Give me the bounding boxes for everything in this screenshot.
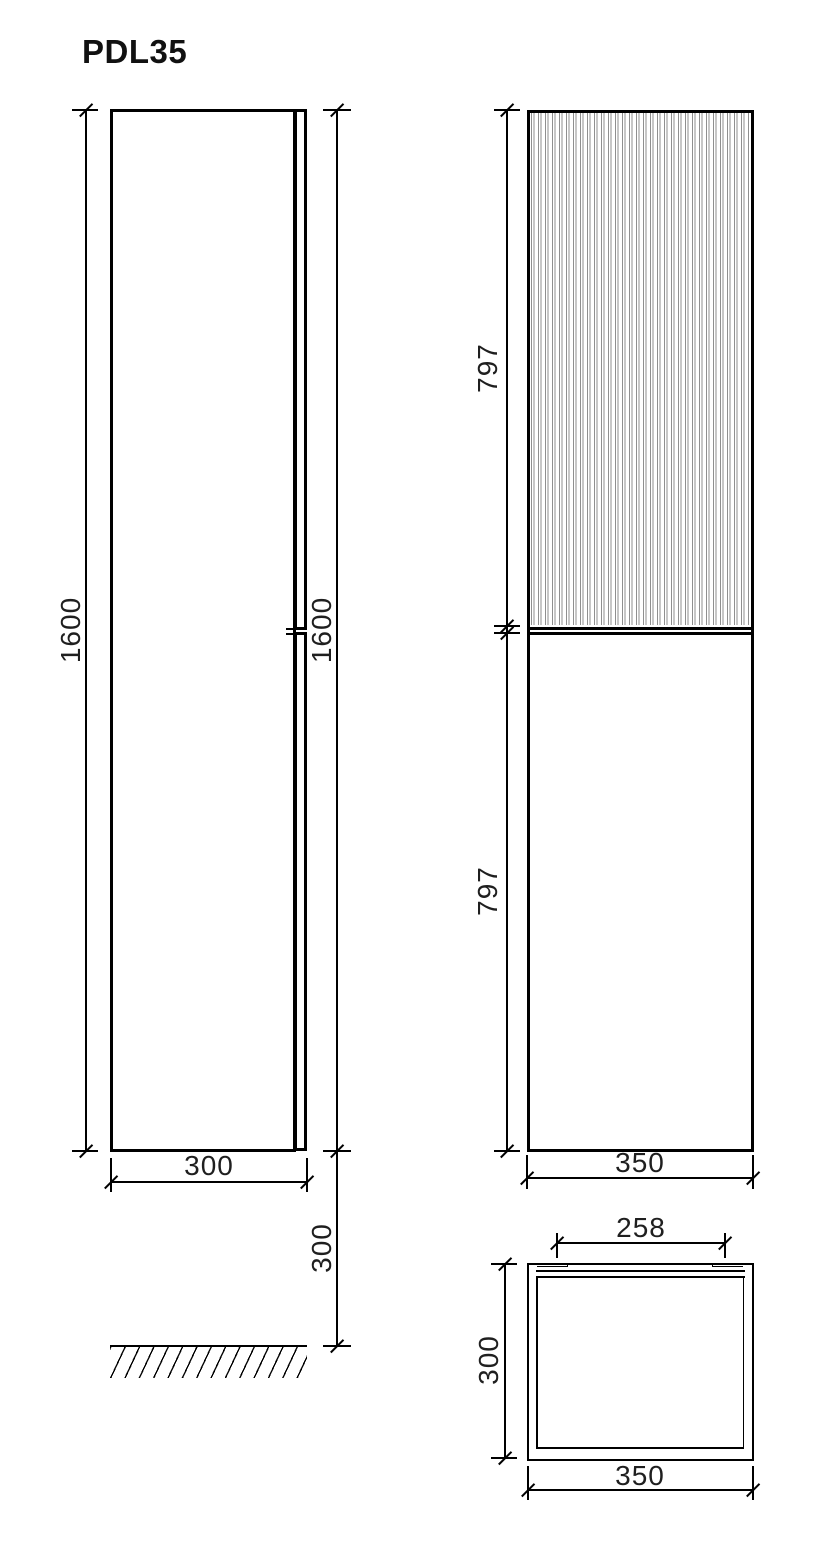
dim-label-side-depth: 300 [184, 1150, 234, 1182]
dim-label-lower-door-height: 797 [472, 866, 504, 916]
side-view-door-split-line [286, 633, 296, 635]
dim-label-plan-depth: 300 [473, 1335, 505, 1385]
floor-hatch [110, 1347, 307, 1378]
extension-line [110, 1158, 111, 1192]
technical-drawing-sheet: PDL35 1600 1600 300 300 797 797 [0, 0, 822, 1562]
extension-line [724, 1233, 725, 1258]
plan-door-notch-left [567, 1263, 568, 1267]
dim-label-plan-width: 350 [615, 1460, 665, 1492]
plan-door-notch-right [712, 1266, 743, 1267]
plan-door-notch-right [712, 1263, 713, 1267]
side-view-door-upper [294, 109, 307, 630]
extension-line [306, 1158, 307, 1192]
drawing-title: PDL35 [82, 33, 187, 71]
plan-side-wall-left [536, 1277, 538, 1449]
plan-view-body [527, 1263, 754, 1461]
plan-door-inner-line [536, 1270, 745, 1272]
dim-label-front-width: 350 [615, 1147, 665, 1179]
dim-label-side-height-right: 1600 [306, 597, 338, 663]
side-view-door-split-line [286, 628, 296, 630]
dim-label-side-floor-offset: 300 [306, 1223, 338, 1273]
dim-label-plan-inner-width: 258 [616, 1212, 666, 1244]
extension-line [752, 1466, 753, 1500]
side-dim-line-height-right [336, 110, 337, 1346]
plan-side-wall-right [743, 1277, 745, 1449]
plan-door-back-line [536, 1276, 745, 1278]
dim-label-side-height-left: 1600 [55, 597, 87, 663]
front-view-fluted-door [531, 113, 750, 625]
front-view-door-gap-lower-edge [527, 632, 754, 635]
extension-line [752, 1155, 753, 1189]
front-view-door-gap-upper-edge [527, 627, 754, 630]
side-view-door-lower [294, 632, 307, 1151]
extension-line [526, 1155, 527, 1189]
plan-bottom-wall-line [536, 1447, 744, 1449]
side-view-body [110, 109, 296, 1152]
extension-line [556, 1233, 557, 1258]
dim-label-upper-door-height: 797 [472, 343, 504, 393]
extension-line [527, 1466, 528, 1500]
plan-door-notch-left [537, 1266, 568, 1267]
